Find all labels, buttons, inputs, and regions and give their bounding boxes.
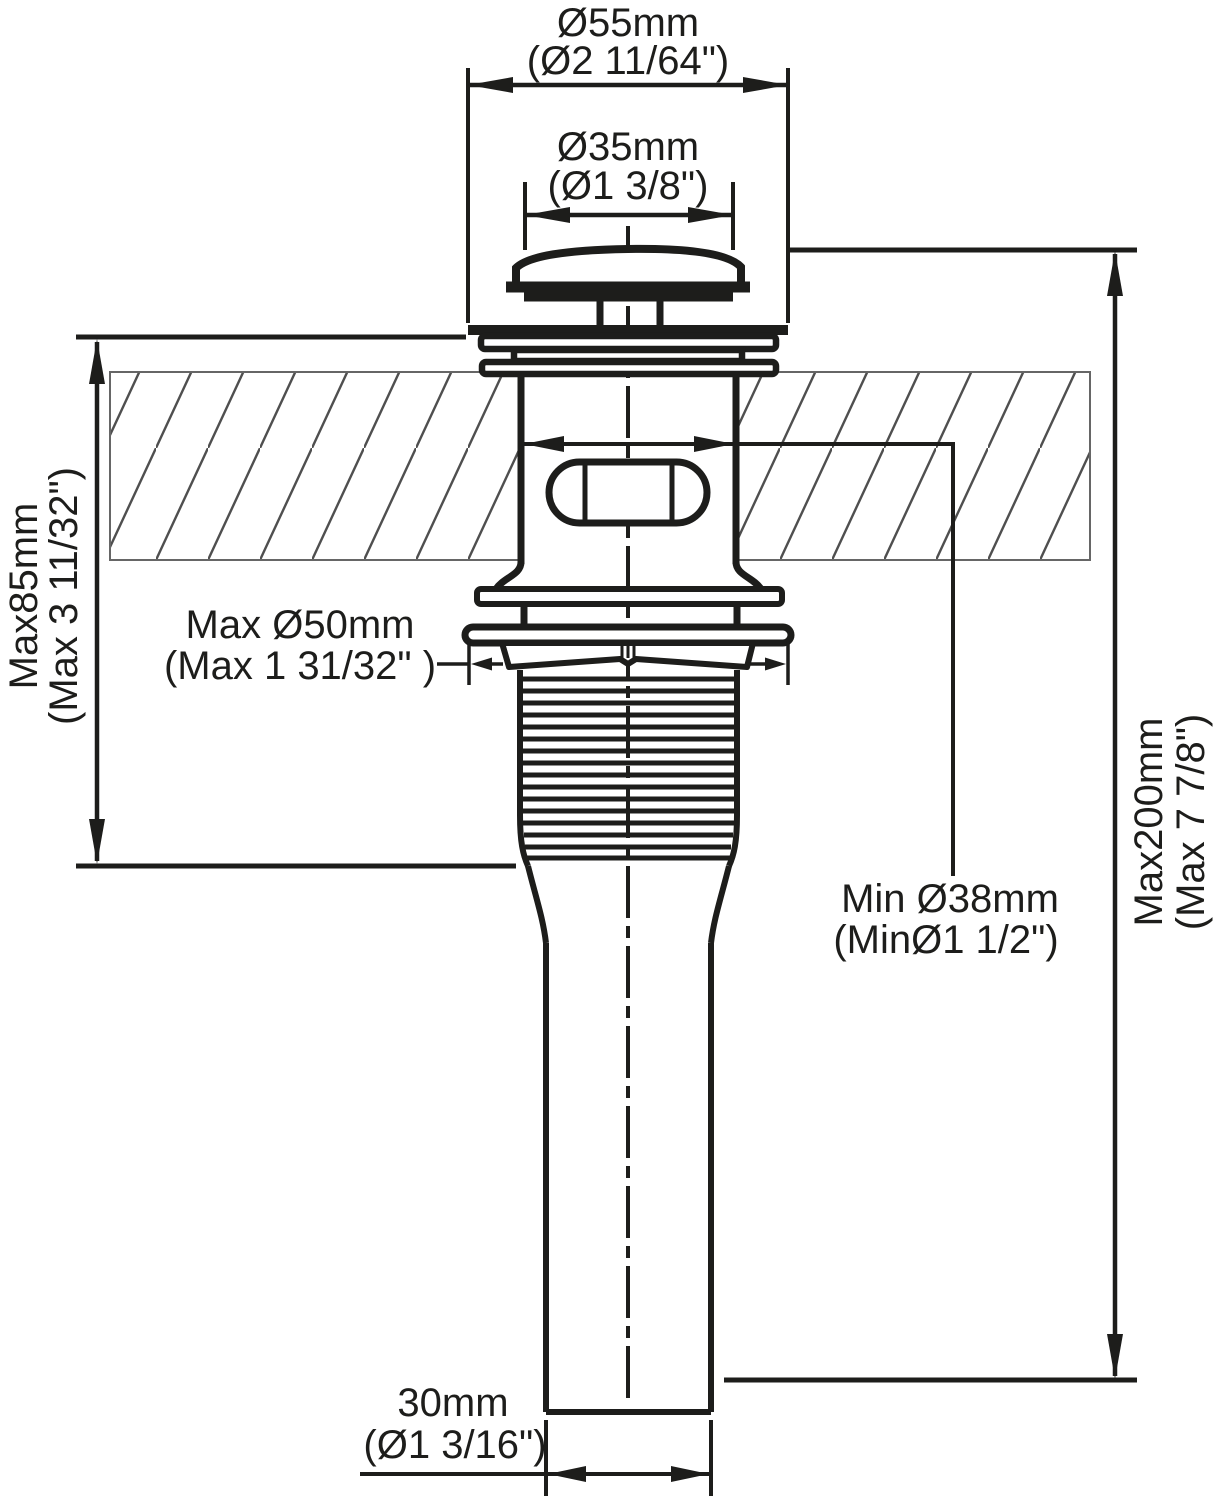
- countertop-right: [737, 372, 1090, 560]
- label-hole-max-inch: (Max 1 31/32" ): [164, 644, 436, 688]
- label-cap-od-inch: (Ø2 11/64"): [527, 39, 729, 83]
- overflow-slot: [549, 462, 707, 523]
- countertop-left: [110, 372, 519, 560]
- arrow-up-icon: [89, 339, 105, 384]
- arrow-down-icon: [1107, 1334, 1123, 1379]
- arrow-right-icon: [694, 436, 734, 452]
- label-total-length-mm: Max200mm: [1127, 718, 1171, 927]
- arrow-left-icon: [468, 77, 513, 93]
- label-hole-min-inch: (MinØ1 1/2"): [833, 918, 1058, 962]
- label-mount-depth-inch: (Max 3 11/32"): [42, 467, 86, 725]
- friction-washer: [477, 589, 782, 604]
- arrow-left-icon: [525, 207, 570, 223]
- arrow-left-icon: [471, 658, 492, 671]
- labels: Ø55mm (Ø2 11/64") Ø35mm (Ø1 3/8") Max85m…: [2, 1, 1213, 1467]
- arrow-left-icon: [524, 436, 564, 452]
- arrow-left-icon: [548, 1466, 586, 1482]
- label-tail-od-inch: (Ø1 3/16"): [363, 1423, 546, 1467]
- label-total-length-inch: (Max 7 7/8"): [1169, 714, 1213, 930]
- arrow-right-icon: [671, 1466, 709, 1482]
- label-hole-min-mm: Min Ø38mm: [841, 877, 1059, 921]
- label-mount-depth: Max85mm (Max 3 11/32"): [2, 467, 86, 725]
- label-cap-top-mm: Ø35mm: [557, 125, 699, 169]
- arrow-right-icon: [743, 77, 788, 93]
- arrow-right-icon: [765, 658, 786, 671]
- gasket-lower: [482, 362, 776, 374]
- drain-diagram-svg: Ø55mm (Ø2 11/64") Ø35mm (Ø1 3/8") Max85m…: [0, 0, 1217, 1500]
- label-cap-top-inch: (Ø1 3/8"): [548, 164, 709, 208]
- arrow-down-icon: [89, 819, 105, 864]
- arrow-up-icon: [1107, 251, 1123, 296]
- label-tail-od-mm: 30mm: [397, 1381, 508, 1425]
- technical-drawing-canvas: Ø55mm (Ø2 11/64") Ø35mm (Ø1 3/8") Max85m…: [0, 0, 1217, 1500]
- label-hole-max-mm: Max Ø50mm: [186, 603, 415, 647]
- mounting-nut: [502, 643, 753, 667]
- label-total-length: Max200mm (Max 7 7/8"): [1127, 714, 1213, 930]
- arrow-right-icon: [688, 207, 733, 223]
- label-mount-depth-mm: Max85mm: [2, 503, 46, 690]
